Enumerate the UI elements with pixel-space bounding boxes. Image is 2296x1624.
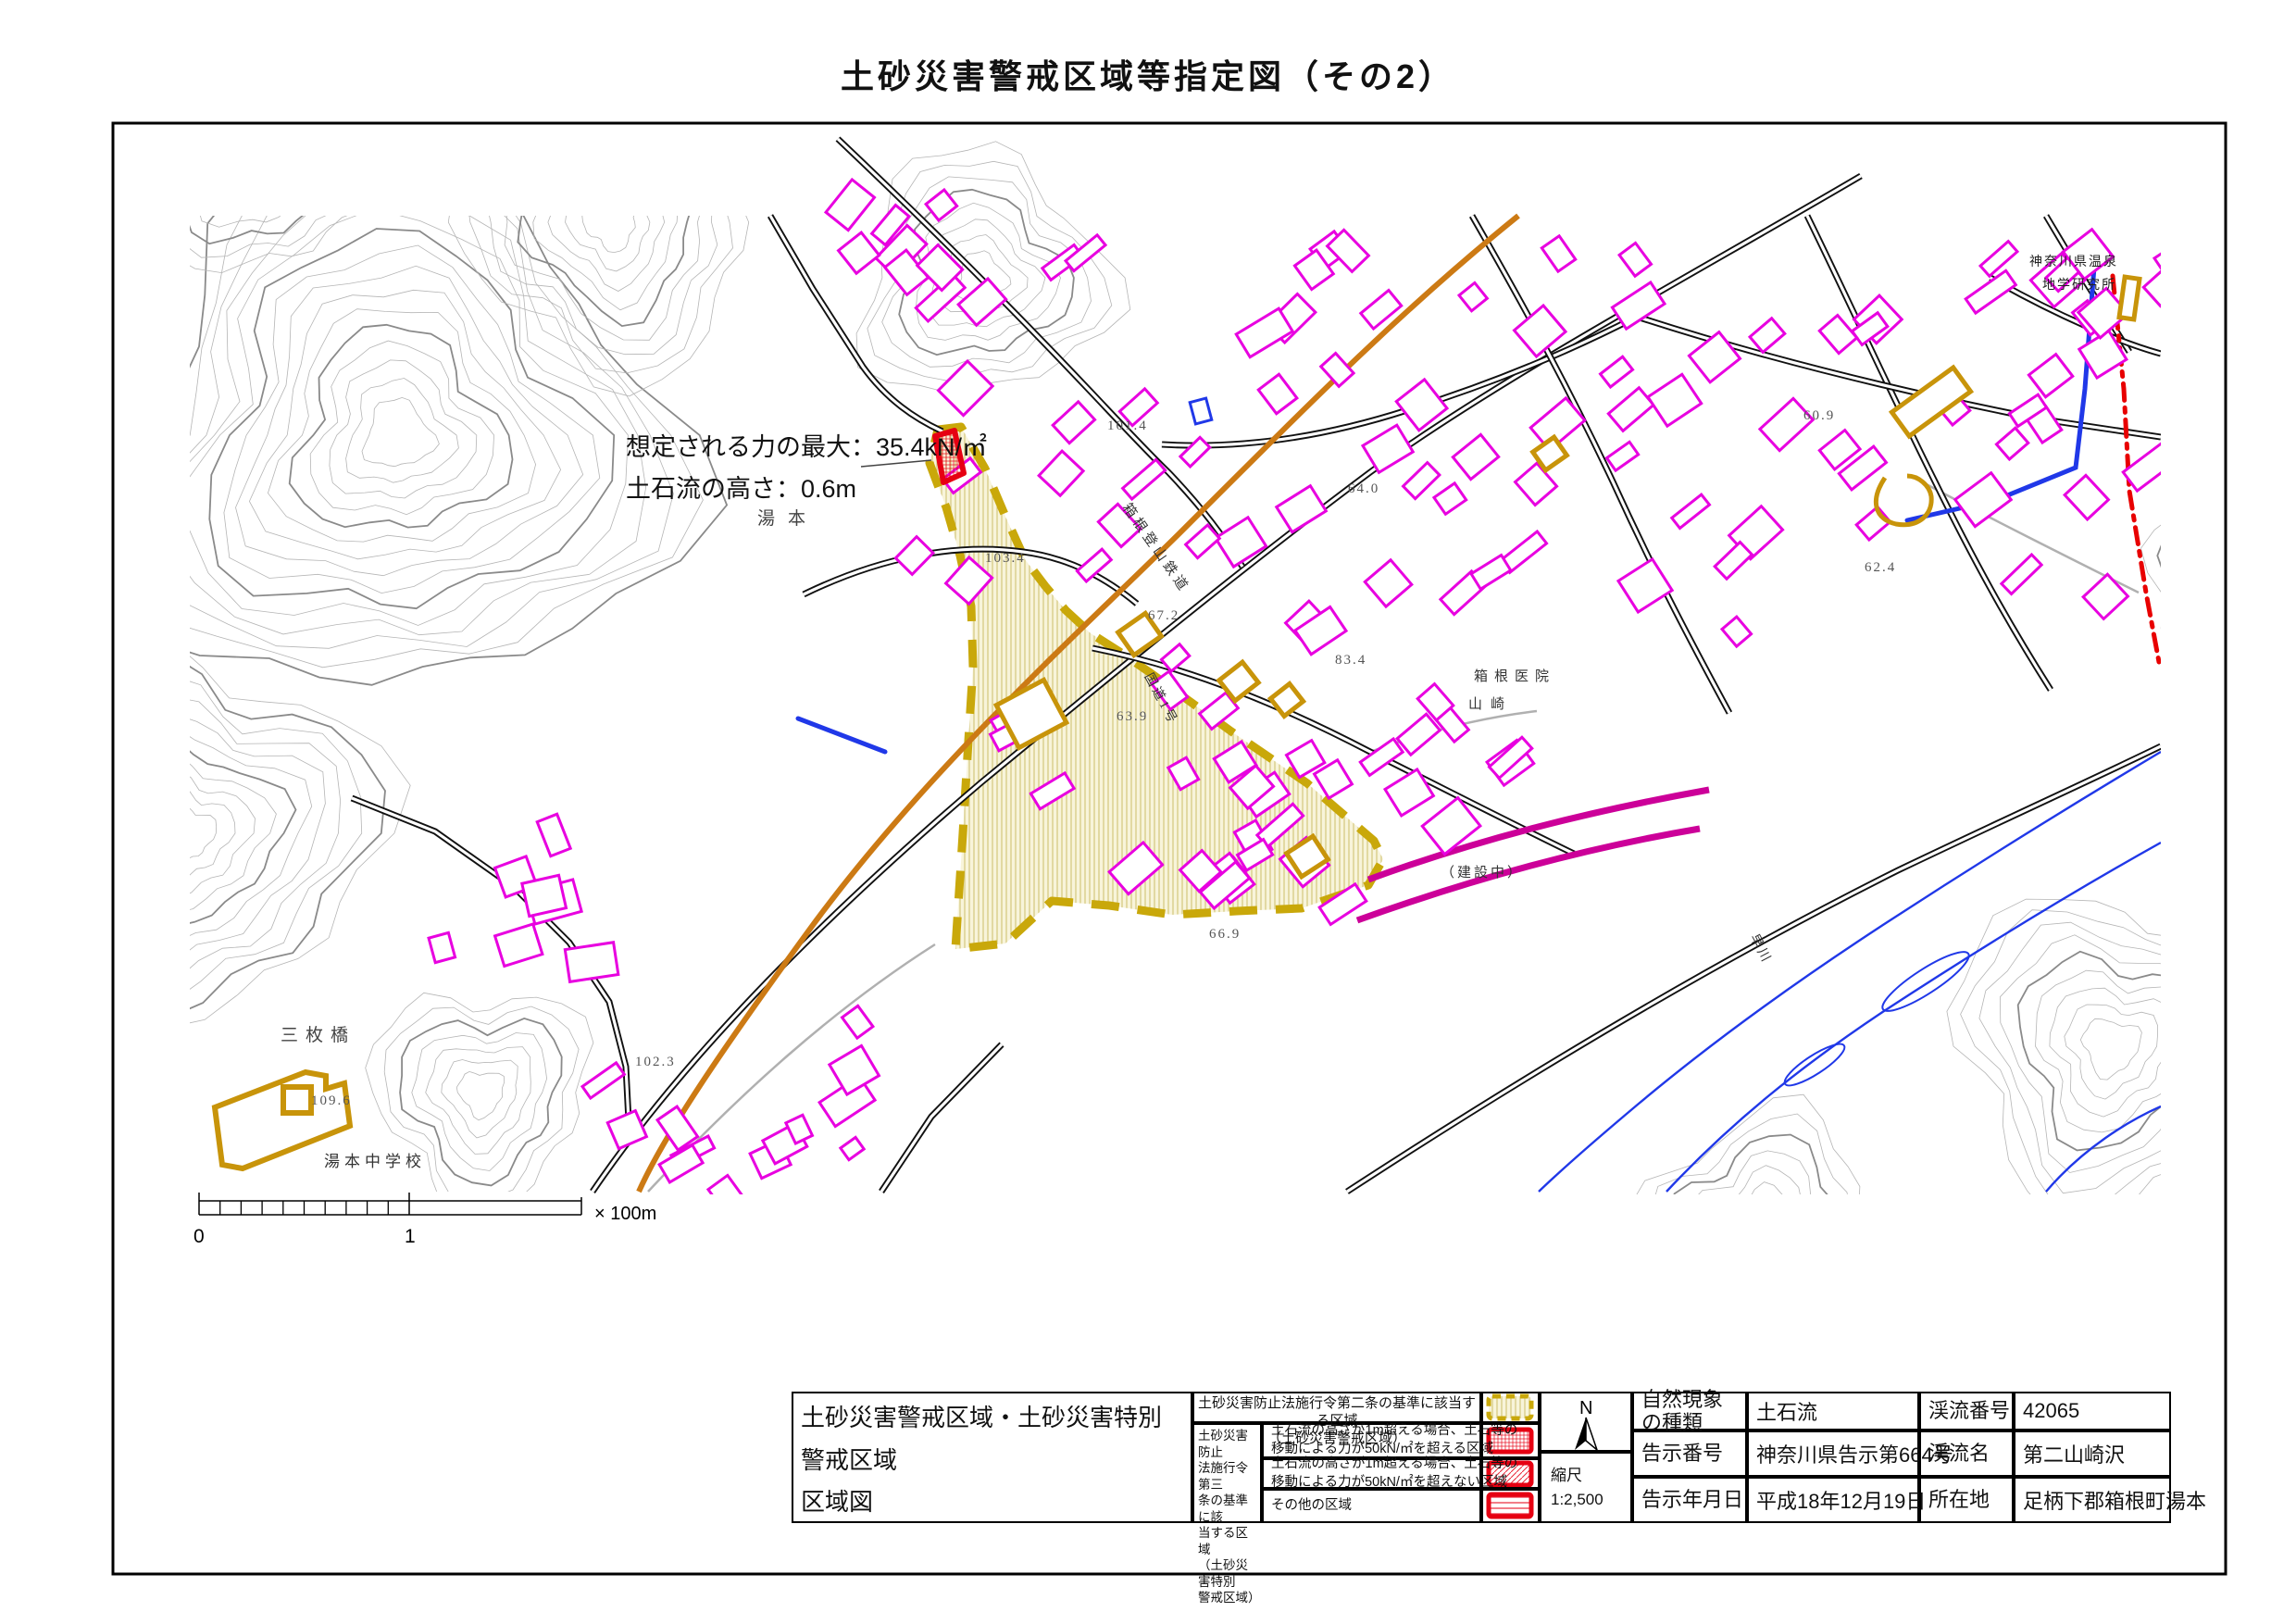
building-outline — [1471, 556, 1511, 590]
building-outline — [1397, 714, 1440, 755]
building-outline — [841, 1137, 864, 1159]
map-doc-title-cell: 土砂災害警戒区域・土砂災害特別警戒区域 区域図 — [792, 1392, 1192, 1523]
building-outline — [1618, 559, 1672, 612]
building-outline — [1996, 428, 2028, 459]
doc-title-line2: 区域図 — [801, 1481, 1183, 1524]
building-outline — [839, 232, 880, 273]
contour-line — [1713, 1182, 1797, 1275]
elevation-label: 62.4 — [1865, 560, 1896, 575]
contour-line — [2216, 568, 2268, 620]
contour-line — [21, 652, 385, 1019]
contour-line — [2190, 533, 2296, 649]
building-outline — [1365, 560, 1412, 606]
contour-line — [566, 181, 650, 271]
place-label-hakone-clinic: 箱根医院 — [1474, 668, 1555, 684]
building-outline — [1965, 270, 2015, 313]
building-outline — [1715, 543, 1752, 580]
scale-value: 1:2,500 — [1551, 1488, 1630, 1512]
contour-line — [505, 117, 705, 341]
building-outline — [830, 1045, 880, 1094]
contour-line — [2080, 1018, 2141, 1080]
building-outline — [1039, 451, 1083, 495]
building-outline — [1360, 739, 1403, 776]
contour-line — [181, 65, 358, 244]
contour-line — [518, 131, 692, 326]
building-outline — [842, 1006, 873, 1038]
contour-line — [165, 51, 374, 257]
river-bank — [2046, 1106, 2161, 1192]
legend-special-row-over50: 土石流の高さが1m超える場合、土石等の 移動による力が50kN/㎡を超える区域 — [1262, 1423, 1481, 1458]
building-outline — [895, 537, 933, 575]
contour-line — [2036, 970, 2198, 1132]
info-label-location: 所在地 — [1919, 1477, 2014, 1523]
building-outline — [2065, 475, 2108, 519]
place-label-onsen-institute-1: 神奈川県温泉 — [2029, 254, 2118, 269]
building-outline — [1608, 388, 1653, 431]
scale-bar-zero: 0 — [193, 1226, 205, 1247]
building-outline — [1459, 282, 1487, 310]
legend-special-row-other: その他の区域 — [1262, 1489, 1481, 1523]
contour-line — [224, 245, 600, 593]
info-label-stream-name: 渓流名 — [1919, 1430, 2014, 1477]
building-outline — [1955, 473, 2011, 527]
building-outline — [1404, 463, 1440, 499]
place-label-yamazaki: 山崎 — [1468, 696, 1513, 712]
contour-line — [330, 360, 477, 498]
contour-line — [197, 80, 344, 228]
contour-line — [533, 148, 678, 310]
building-outline — [659, 1145, 703, 1182]
elevation-label: 83.4 — [1335, 653, 1366, 668]
building-outline — [1453, 434, 1498, 479]
building-outline — [826, 180, 874, 231]
road-casing — [881, 1044, 1002, 1192]
building-outline — [522, 875, 567, 916]
contour-line — [582, 195, 636, 253]
building-outline — [1672, 494, 1710, 528]
building-outline — [1236, 308, 1292, 357]
building-outline — [708, 1175, 743, 1211]
roads — [352, 139, 2161, 1192]
contour-line — [362, 397, 439, 466]
info-label-stream-number: 渓流番号 — [1919, 1392, 2014, 1430]
label-under-construction: （建設中） — [1441, 865, 1524, 881]
building-outline — [958, 279, 1005, 325]
building-outline — [1321, 353, 1354, 386]
building-outline — [1277, 486, 1327, 532]
building-outline — [1722, 617, 1752, 646]
scale-label: 縮尺 — [1551, 1464, 1630, 1488]
place-label-onsen-institute-2: 地学研究所 — [2042, 278, 2116, 293]
scale-bar-one: 1 — [405, 1226, 416, 1247]
elevation-label: 60.9 — [1803, 408, 1835, 423]
contour-line — [1729, 1200, 1783, 1259]
elevation-label: 109.6 — [311, 1093, 352, 1108]
road-centerline — [838, 139, 1242, 567]
building-outline — [1123, 459, 1166, 499]
contour-line — [236, 131, 289, 181]
contour-line — [150, 38, 392, 273]
contour-line — [456, 1071, 504, 1119]
building-outline — [1607, 442, 1639, 470]
river-bank — [1666, 843, 2161, 1192]
contour-line — [1979, 922, 2251, 1193]
place-label-yumoto-junior-high: 湯本中学校 — [324, 1153, 426, 1170]
legend-special-zone-label: 土砂災害防止 法施行令第三 条の基準に該 当する区域 （土砂災害特別 警戒区域） — [1192, 1423, 1262, 1523]
contour-lines-left — [6, 38, 749, 1219]
railway-line — [1357, 829, 1700, 920]
building-outline — [2002, 555, 2041, 594]
legend-swatch-cell-1 — [1481, 1392, 1540, 1423]
elevation-label: 103.4 — [985, 551, 1026, 566]
building-outline — [2123, 443, 2175, 491]
legend-swatch-cell-3 — [1481, 1458, 1540, 1489]
building-outline — [2028, 355, 2072, 397]
legend-warning-zone-text: 土砂災害防止法施行令第二条の基準に該当する区域 （土砂災害警戒区域） — [1192, 1392, 1481, 1423]
annotation-force-max: 想定される力の最大：35.4kN/㎡ — [626, 433, 987, 461]
building-outline — [1385, 769, 1433, 816]
road-casing — [838, 139, 1242, 567]
contour-line — [1631, 1094, 1864, 1356]
contour-line — [366, 993, 593, 1219]
building-outline — [1434, 483, 1466, 514]
building-outline — [1980, 242, 2017, 277]
stream-line — [798, 718, 885, 752]
contour-line — [61, 705, 326, 977]
building-outline — [1619, 243, 1651, 276]
river-bank — [1539, 752, 2161, 1192]
legend-special-row-under50: 土石流の高さが1m超える場合、土石等の 移動による力が50kN/㎡を超えない区域 — [1262, 1458, 1481, 1489]
contour-line — [31, 674, 362, 1006]
contour-line — [1652, 1114, 1851, 1343]
building-outline — [1541, 236, 1575, 271]
place-label-sanmaibashi: 三枚橋 — [281, 1025, 356, 1045]
building-outline — [607, 1111, 646, 1149]
contour-line — [142, 789, 236, 882]
river-island — [1780, 1038, 1850, 1092]
building-outline — [926, 190, 957, 220]
building-outline — [429, 932, 455, 962]
legend-swatch-cell-4 — [1481, 1489, 1540, 1523]
water-tank-outline — [1190, 398, 1212, 424]
building-outline — [2143, 269, 2181, 306]
elevation-label: 101.4 — [1107, 418, 1148, 433]
elevation-label: 63.9 — [1117, 709, 1148, 724]
doc-title-line1: 土砂災害警戒区域・土砂災害特別警戒区域 — [801, 1397, 1183, 1481]
building-outline — [1053, 402, 1094, 443]
contour-line — [221, 114, 308, 195]
contour-line — [163, 196, 646, 635]
elevation-label: 67.2 — [1148, 608, 1179, 623]
info-value-stream-number: 42065 — [2014, 1392, 2171, 1430]
school-courtyard — [283, 1087, 311, 1113]
contour-line — [412, 1033, 547, 1171]
place-label-yumoto: 湯本 — [757, 508, 818, 529]
building-outline — [537, 814, 570, 856]
contour-line — [2202, 552, 2287, 635]
scale-cell: 縮尺 1:2,500 — [1540, 1452, 1632, 1523]
building-outline — [1750, 319, 1785, 353]
info-value-location: 足柄下郡箱根町湯本 — [2014, 1477, 2171, 1523]
building-outline — [939, 361, 993, 416]
info-label-notice-number: 告示番号 — [1632, 1430, 1747, 1477]
contour-line — [1665, 1135, 1840, 1327]
contour-line — [209, 229, 614, 608]
building-outline — [1856, 506, 1890, 539]
legend-swatch-cell-2 — [1481, 1423, 1540, 1458]
public-building-outline — [1876, 476, 1931, 525]
contour-line — [2175, 517, 2296, 666]
public-building-outline — [1270, 684, 1303, 717]
info-label-phenomenon: 自然現象 の種類 — [1632, 1392, 1747, 1430]
building-outline — [2154, 231, 2205, 274]
scale-bar-unit: × 100m — [594, 1204, 656, 1224]
info-value-stream-name: 第二山崎沢 — [2014, 1430, 2171, 1477]
contour-line — [128, 770, 255, 899]
contour-line — [442, 1060, 518, 1138]
building-outline — [2083, 574, 2128, 618]
contour-line — [94, 735, 296, 935]
building-outline — [1760, 398, 1813, 450]
annotation-flow-height: 土石流の高さ：0.6m — [626, 475, 856, 503]
public-building-outline — [2119, 277, 2140, 319]
elevation-label: 66.9 — [1209, 927, 1241, 942]
building-outline — [1689, 332, 1740, 382]
elevation-label: 102.3 — [635, 1055, 676, 1069]
contour-line — [2018, 952, 2215, 1151]
contour-line — [310, 341, 493, 515]
contour-line — [208, 96, 327, 210]
contour-line — [346, 379, 459, 483]
building-outline — [1180, 437, 1210, 467]
map-canvas: 想定される力の最大：35.4kN/㎡ 土石流の高さ：0.6m 湯本 三枚橋 湯本… — [0, 0, 2296, 1624]
info-value-notice-number: 神奈川県告示第664号 — [1747, 1430, 1919, 1477]
info-value-phenomenon: 土石流 — [1747, 1392, 1919, 1430]
contour-line — [448, 77, 748, 396]
info-label-notice-date: 告示年月日 — [1632, 1477, 1747, 1523]
contour-line — [156, 806, 217, 866]
river-island — [1877, 943, 1975, 1019]
contour-line — [2000, 935, 2232, 1173]
building-outline — [1601, 356, 1633, 387]
north-arrow-cell — [1540, 1392, 1632, 1452]
building-outline — [582, 1063, 624, 1098]
contour-line — [1695, 1166, 1812, 1290]
contour-line — [109, 134, 727, 685]
building-outline — [1258, 374, 1297, 414]
contour-line — [2065, 1005, 2158, 1099]
info-value-notice-date: 平成18年12月19日 — [1747, 1477, 1919, 1523]
elevation-label: 64.0 — [1348, 481, 1379, 496]
annotation-leader-line — [861, 460, 931, 467]
building-outline — [1648, 374, 1702, 426]
scale-bar: 0 1 × 100m — [193, 1193, 656, 1247]
building-outline — [565, 943, 618, 982]
building-outline — [1363, 425, 1413, 472]
building-outline — [1819, 315, 1856, 353]
public-building-outline — [1891, 368, 1970, 436]
contour-line — [2141, 486, 2296, 705]
building-outline — [495, 924, 543, 967]
